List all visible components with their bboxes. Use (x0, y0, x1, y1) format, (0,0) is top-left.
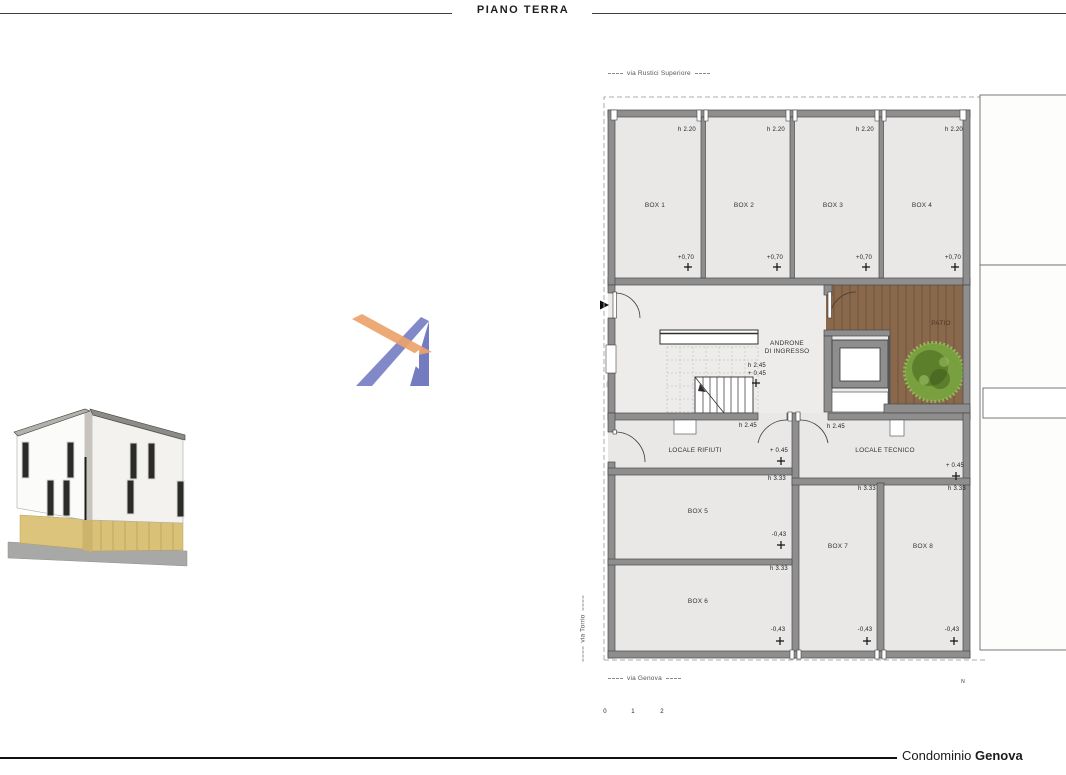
building-3d-render (6, 402, 196, 570)
height-box1: h 2.20 (678, 127, 696, 135)
sheet-title: PIANO TERRA (477, 4, 569, 16)
level-box5: -0,43 (772, 532, 787, 540)
room-label-box7: BOX 7 (828, 543, 848, 551)
machine-box (832, 392, 888, 412)
street-dash (583, 595, 584, 610)
project-name: Genova (975, 748, 1023, 763)
room-label-box4: BOX 4 (912, 202, 932, 210)
level-box3: +0,70 (856, 255, 872, 263)
render-base-left (20, 515, 83, 549)
room-label-box5: BOX 5 (688, 508, 708, 516)
level-box8: -0,43 (945, 627, 960, 635)
level-rifiuti: + 0.45 (770, 448, 788, 456)
project-title: Condominio Genova (902, 748, 1023, 763)
header-rule-right (592, 13, 1066, 14)
render-base-center (83, 518, 92, 552)
room-label-box2: BOX 2 (734, 202, 754, 210)
room-label-androne-line1: ANDRONE (770, 340, 804, 348)
room-label-androne-line2: DI INGRESSO (765, 348, 810, 356)
level-androne: + 0.45 (748, 371, 766, 379)
scale-tick-0: 0 (603, 709, 607, 717)
room-label-patio: PATIO (931, 320, 951, 328)
height-rifiuti: h 2.45 (739, 423, 757, 431)
level-tecnico: + 0.45 (946, 463, 964, 471)
footer-rule (0, 757, 897, 759)
street-name-top: via Rustici Superiore (627, 70, 691, 77)
level-box2: +0,70 (767, 255, 783, 263)
street-dash (608, 678, 623, 679)
elevator-cab (840, 348, 880, 381)
agency-logo-watermark (350, 312, 436, 394)
street-dash (583, 647, 584, 662)
scale-tick-2: 2 (660, 709, 664, 717)
level-box6: -0,43 (771, 627, 786, 635)
street-dash (608, 73, 623, 74)
room-label-box3: BOX 3 (823, 202, 843, 210)
level-box1: +0,70 (678, 255, 694, 263)
street-name-left: via Torrio (580, 614, 587, 642)
north-label: N (961, 679, 965, 685)
adjacent-buildings (980, 95, 1066, 650)
room-label-rifiuti: LOCALE RIFIUTI (668, 447, 721, 455)
height-box4: h 2.20 (945, 127, 963, 135)
scale-tick-1: 1 (631, 709, 635, 717)
level-box7: -0,43 (858, 627, 873, 635)
height-box2: h 2.20 (767, 127, 785, 135)
room-label-box8: BOX 8 (913, 543, 933, 551)
room-label-box1: BOX 1 (645, 202, 665, 210)
street-label-left: via Torrio (580, 589, 587, 669)
room-label-tecnico: LOCALE TECNICO (855, 447, 914, 455)
elevator-block (824, 330, 891, 412)
street-dash (666, 678, 681, 679)
height-box6: h 3.33 (770, 566, 788, 574)
height-box7: h 3.33 (858, 486, 876, 494)
floor-plan-drawing (600, 88, 1066, 678)
height-box5: h 3.33 (768, 476, 786, 484)
floor-plan-sheet: PIANO TERRA NA dal 2003 (0, 0, 1066, 775)
street-dash (695, 73, 710, 74)
header-rule-left (0, 13, 452, 14)
height-tecnico: h 2.45 (827, 424, 845, 432)
height-box8: h 3.33 (948, 486, 966, 494)
street-label-top: via Rustici Superiore (604, 70, 714, 77)
height-androne: h 2.45 (748, 363, 766, 371)
logo-notch (407, 350, 419, 369)
height-box3: h 2.20 (856, 127, 874, 135)
level-box4: +0,70 (945, 255, 961, 263)
room-label-box6: BOX 6 (688, 598, 708, 606)
project-prefix: Condominio (902, 748, 975, 763)
